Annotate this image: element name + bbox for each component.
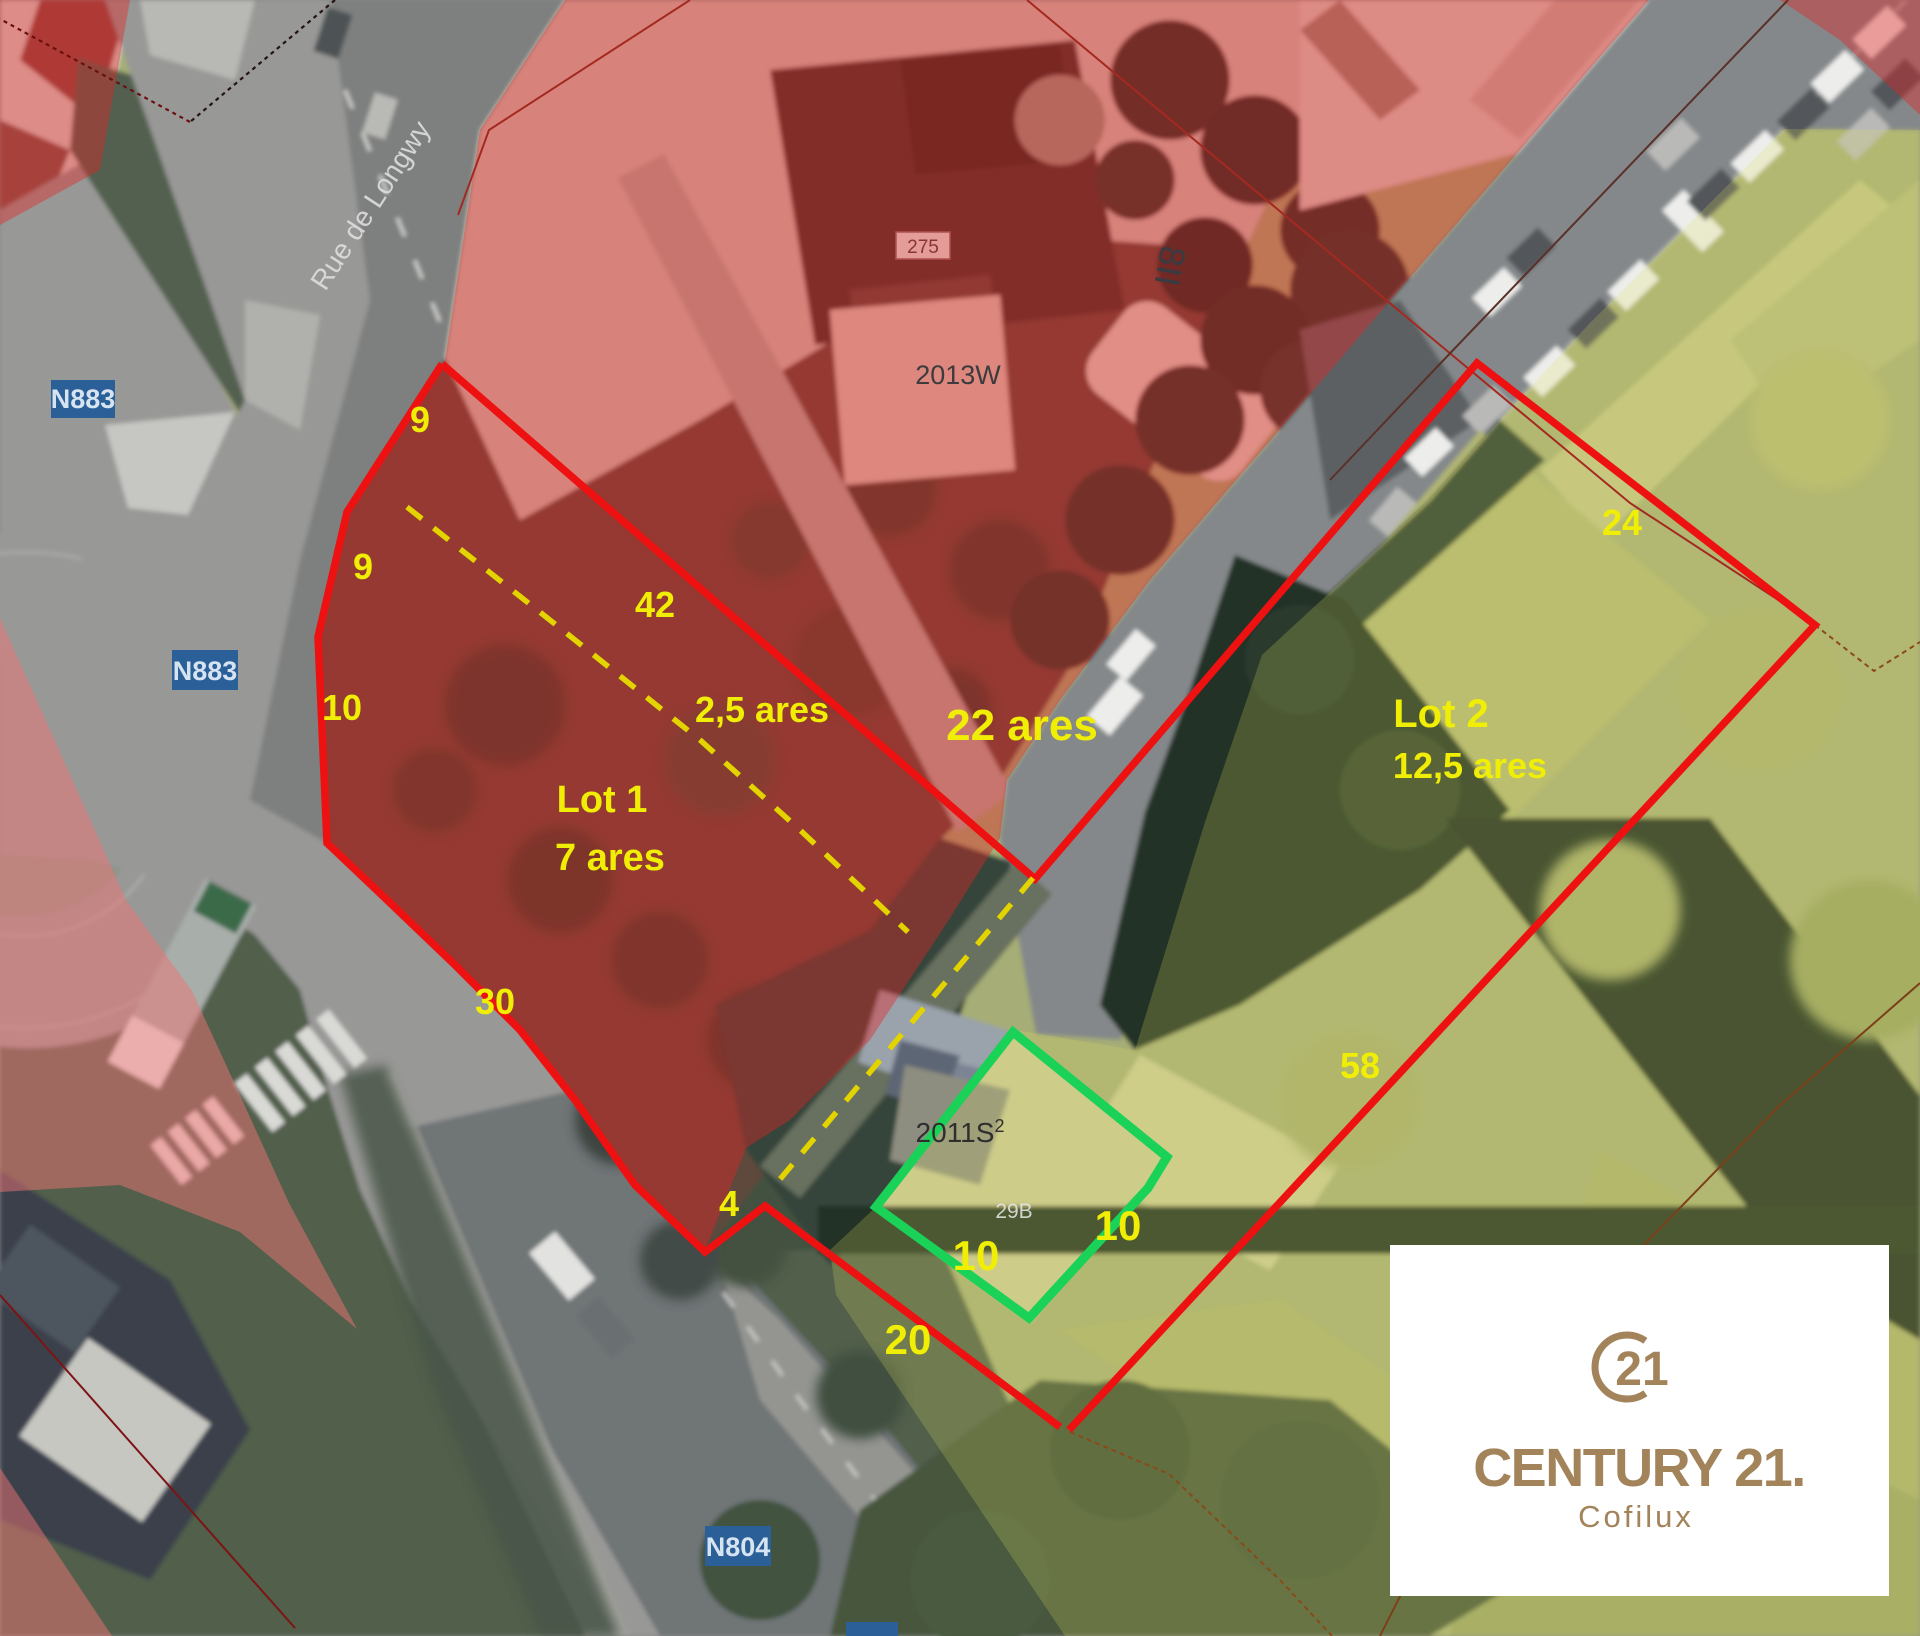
svg-text:8II: 8II bbox=[1147, 243, 1194, 290]
svg-text:12,5 ares: 12,5 ares bbox=[1393, 745, 1547, 786]
svg-text:20: 20 bbox=[885, 1316, 932, 1363]
svg-text:Lot 1: Lot 1 bbox=[557, 779, 648, 821]
svg-text:4: 4 bbox=[719, 1183, 739, 1224]
svg-text:2013W: 2013W bbox=[915, 360, 1001, 390]
svg-text:N883: N883 bbox=[173, 656, 238, 686]
svg-text:CENTURY 21.: CENTURY 21. bbox=[1473, 1438, 1805, 1498]
svg-text:21: 21 bbox=[1615, 1343, 1668, 1396]
svg-text:10: 10 bbox=[953, 1232, 1000, 1279]
svg-text:22 ares: 22 ares bbox=[946, 701, 1098, 750]
svg-text:30: 30 bbox=[475, 981, 515, 1022]
svg-text:42: 42 bbox=[635, 584, 675, 625]
svg-text:10: 10 bbox=[1095, 1202, 1142, 1249]
svg-text:N804: N804 bbox=[706, 1532, 771, 1562]
svg-text:58: 58 bbox=[1340, 1045, 1380, 1086]
svg-text:275: 275 bbox=[907, 237, 939, 258]
svg-text:2011S2: 2011S2 bbox=[916, 1116, 1005, 1148]
svg-text:7 ares: 7 ares bbox=[555, 837, 665, 879]
svg-text:Lot 2: Lot 2 bbox=[1393, 692, 1489, 736]
svg-text:9: 9 bbox=[353, 546, 373, 587]
svg-text:Cofilux: Cofilux bbox=[1578, 1499, 1694, 1534]
svg-text:29B: 29B bbox=[995, 1200, 1032, 1223]
svg-text:24: 24 bbox=[1602, 502, 1642, 543]
svg-text:2,5 ares: 2,5 ares bbox=[695, 689, 829, 730]
svg-text:N883: N883 bbox=[51, 384, 116, 414]
svg-text:9: 9 bbox=[410, 399, 430, 440]
svg-text:10: 10 bbox=[322, 687, 362, 728]
